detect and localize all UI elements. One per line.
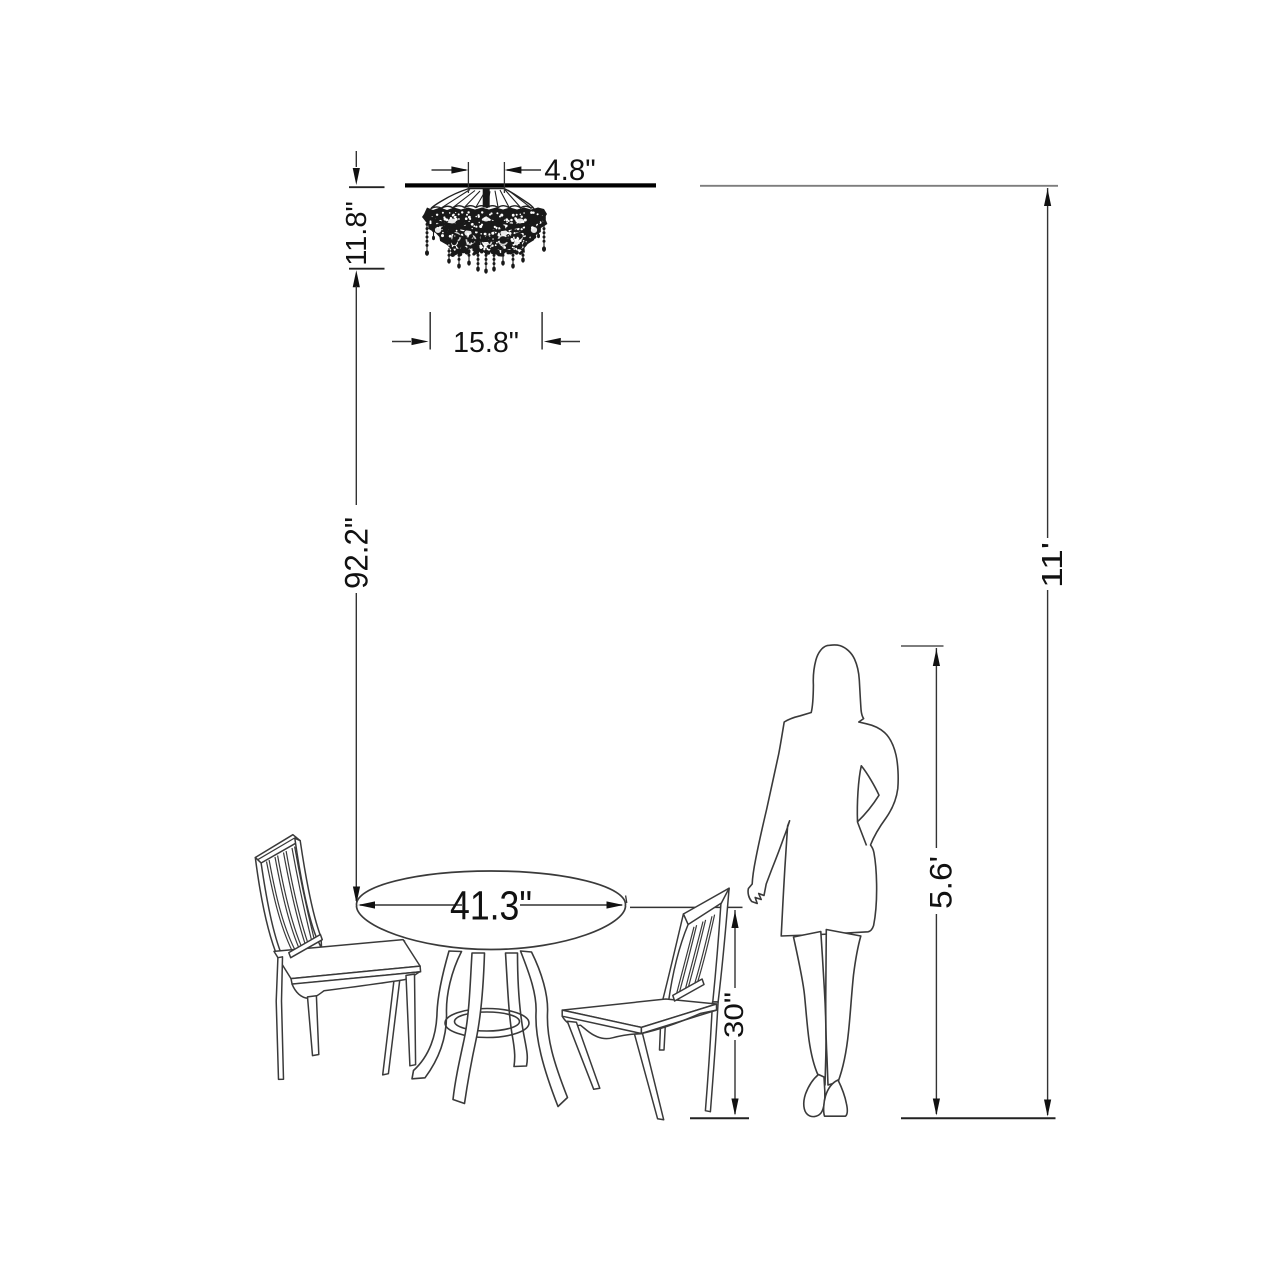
svg-text:4.8": 4.8": [544, 154, 595, 187]
svg-text:30": 30": [719, 992, 749, 1038]
svg-text:5.6': 5.6': [923, 856, 959, 909]
svg-text:92.2": 92.2": [339, 517, 375, 589]
svg-text:15.8": 15.8": [453, 327, 519, 359]
svg-text:11': 11': [1037, 542, 1069, 588]
svg-text:41.3": 41.3": [450, 883, 532, 929]
svg-text:11.8": 11.8": [341, 201, 373, 266]
